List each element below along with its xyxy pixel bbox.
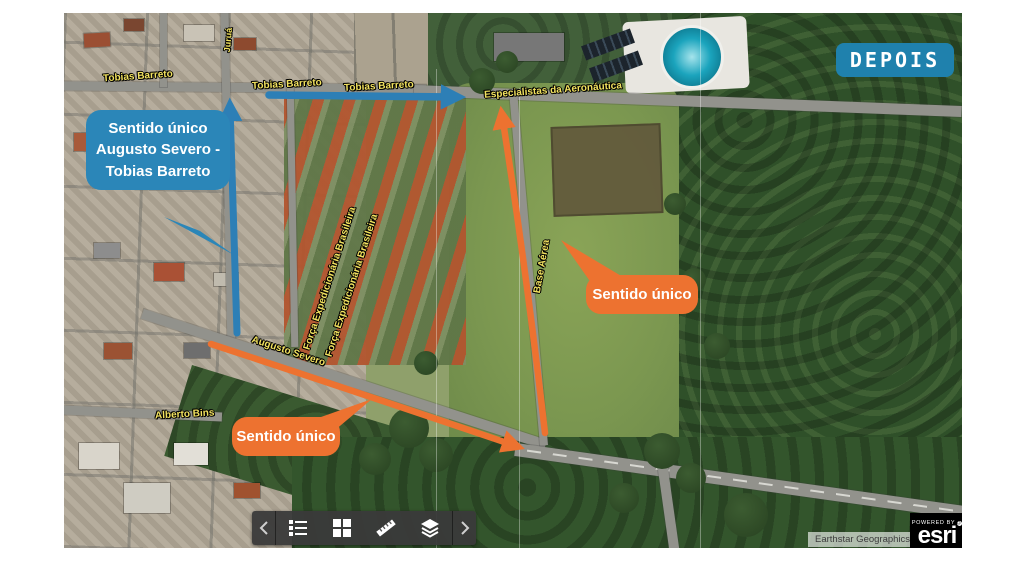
- street-label: Alberto Bins: [155, 407, 215, 421]
- expand-right-button[interactable]: [453, 511, 476, 545]
- legend-button[interactable]: [276, 511, 320, 545]
- street-label: Tobias Barreto: [344, 79, 414, 94]
- street-label: Base Aérea: [531, 231, 554, 302]
- ruler-icon: [376, 518, 396, 538]
- chevron-right-icon: [460, 521, 470, 535]
- measure-button[interactable]: [364, 511, 408, 545]
- chevron-left-icon: [259, 521, 269, 535]
- collapse-left-button[interactable]: [252, 511, 275, 545]
- depois-badge: DEPOIS: [836, 43, 954, 77]
- street-label: Juruá: [221, 20, 234, 61]
- street-label: Especialistas da Aeronáutica: [484, 80, 622, 101]
- layers-button[interactable]: [408, 511, 452, 545]
- callout-sentido-unico-blue: Sentido único Augusto Severo - Tobias Ba…: [86, 110, 230, 190]
- map-canvas[interactable]: Tobias Barreto Tobias Barreto Tobias Bar…: [64, 13, 962, 548]
- grid-icon: [332, 518, 352, 538]
- slide-page: Tobias Barreto Tobias Barreto Tobias Bar…: [0, 0, 1024, 576]
- globe-icon: [957, 521, 962, 526]
- callout-sentido-unico-orange: Sentido único: [586, 275, 698, 314]
- basemap-gallery-button[interactable]: [320, 511, 364, 545]
- street-label: Tobias Barreto: [103, 69, 173, 85]
- street-labels-layer: Tobias Barreto Tobias Barreto Tobias Bar…: [64, 13, 962, 548]
- basemap-attribution: Earthstar Geographics: [808, 532, 917, 547]
- map-toolbar: [252, 511, 476, 545]
- legend-icon: [288, 518, 308, 538]
- street-label: Tobias Barreto: [252, 77, 322, 92]
- layers-icon: [420, 518, 440, 538]
- esri-brand-label: esri: [918, 526, 957, 546]
- esri-logo[interactable]: POWERED BY esri: [910, 513, 962, 548]
- callout-sentido-unico-orange: Sentido único: [232, 417, 340, 456]
